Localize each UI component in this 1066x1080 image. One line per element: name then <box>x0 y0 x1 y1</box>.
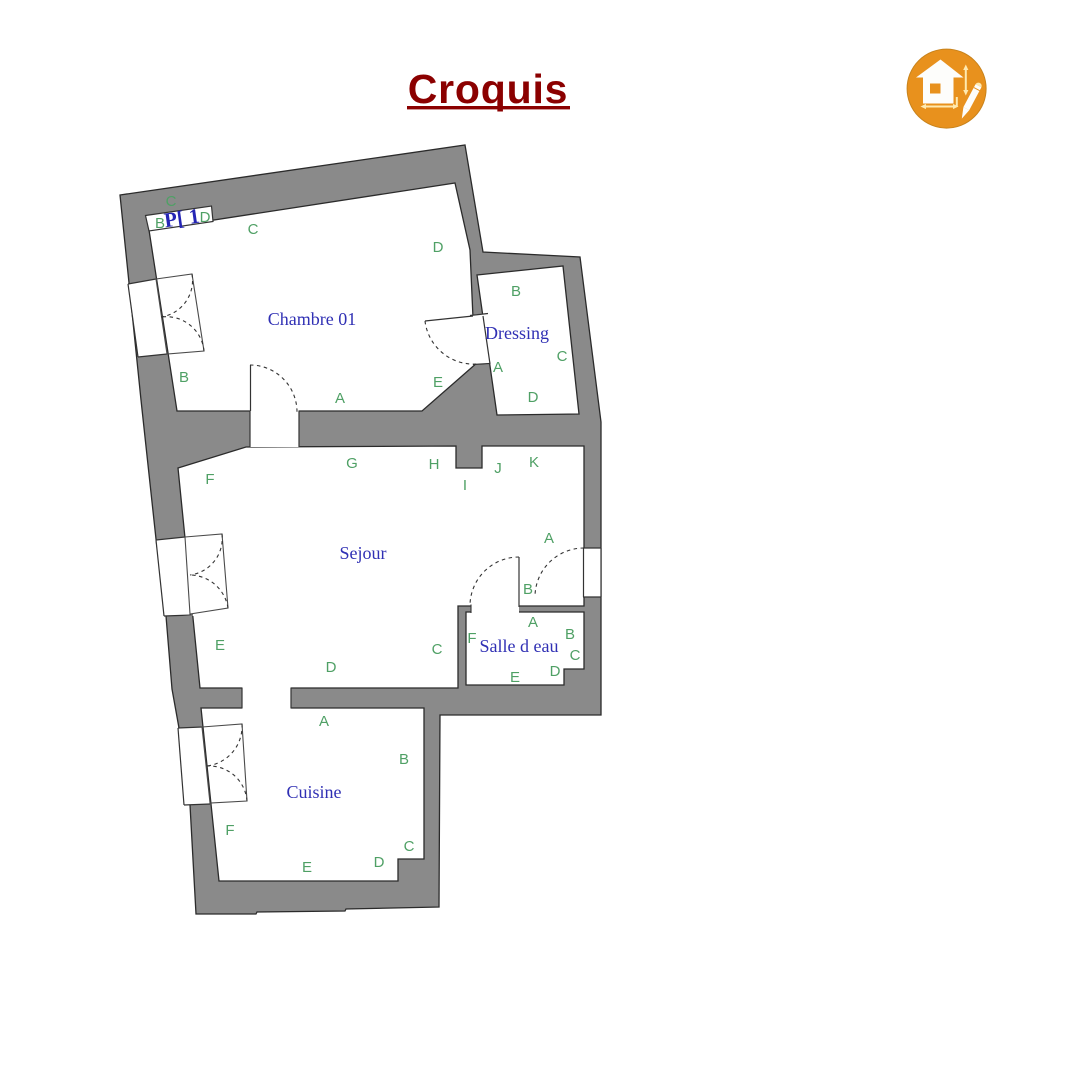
svg-text:Dressing: Dressing <box>485 323 549 343</box>
svg-text:D: D <box>528 389 539 406</box>
svg-text:B: B <box>565 626 575 643</box>
svg-text:B: B <box>511 283 521 300</box>
svg-text:E: E <box>510 669 520 686</box>
svg-text:A: A <box>335 390 345 407</box>
svg-text:C: C <box>432 641 443 658</box>
svg-text:B: B <box>399 751 409 768</box>
svg-text:Sejour: Sejour <box>340 543 387 563</box>
svg-text:F: F <box>467 630 476 647</box>
svg-text:J: J <box>494 460 502 477</box>
svg-text:P[ 1: P[ 1 <box>163 204 202 233</box>
svg-text:A: A <box>319 713 329 730</box>
svg-text:G: G <box>346 455 358 472</box>
svg-text:D: D <box>550 663 561 680</box>
svg-text:A: A <box>528 614 538 631</box>
svg-text:D: D <box>200 209 211 226</box>
svg-text:Cuisine: Cuisine <box>286 782 341 802</box>
svg-text:A: A <box>493 359 503 376</box>
svg-text:C: C <box>557 348 568 365</box>
svg-text:C: C <box>404 838 415 855</box>
svg-text:Chambre 01: Chambre 01 <box>268 309 356 329</box>
svg-text:F: F <box>225 822 234 839</box>
svg-text:E: E <box>433 374 443 391</box>
svg-text:E: E <box>215 637 225 654</box>
svg-text:D: D <box>433 239 444 256</box>
svg-text:I: I <box>463 477 467 494</box>
svg-text:B: B <box>523 581 533 598</box>
svg-text:B: B <box>179 369 189 386</box>
svg-text:K: K <box>529 454 539 471</box>
svg-text:C: C <box>248 221 259 238</box>
svg-text:H: H <box>429 456 440 473</box>
svg-text:Salle d eau: Salle d eau <box>480 636 559 656</box>
svg-text:F: F <box>205 471 214 488</box>
svg-text:Croquis: Croquis <box>408 66 569 112</box>
svg-text:E: E <box>302 859 312 876</box>
svg-text:C: C <box>570 647 581 664</box>
svg-text:A: A <box>544 530 554 547</box>
svg-text:D: D <box>374 854 385 871</box>
svg-text:D: D <box>326 659 337 676</box>
